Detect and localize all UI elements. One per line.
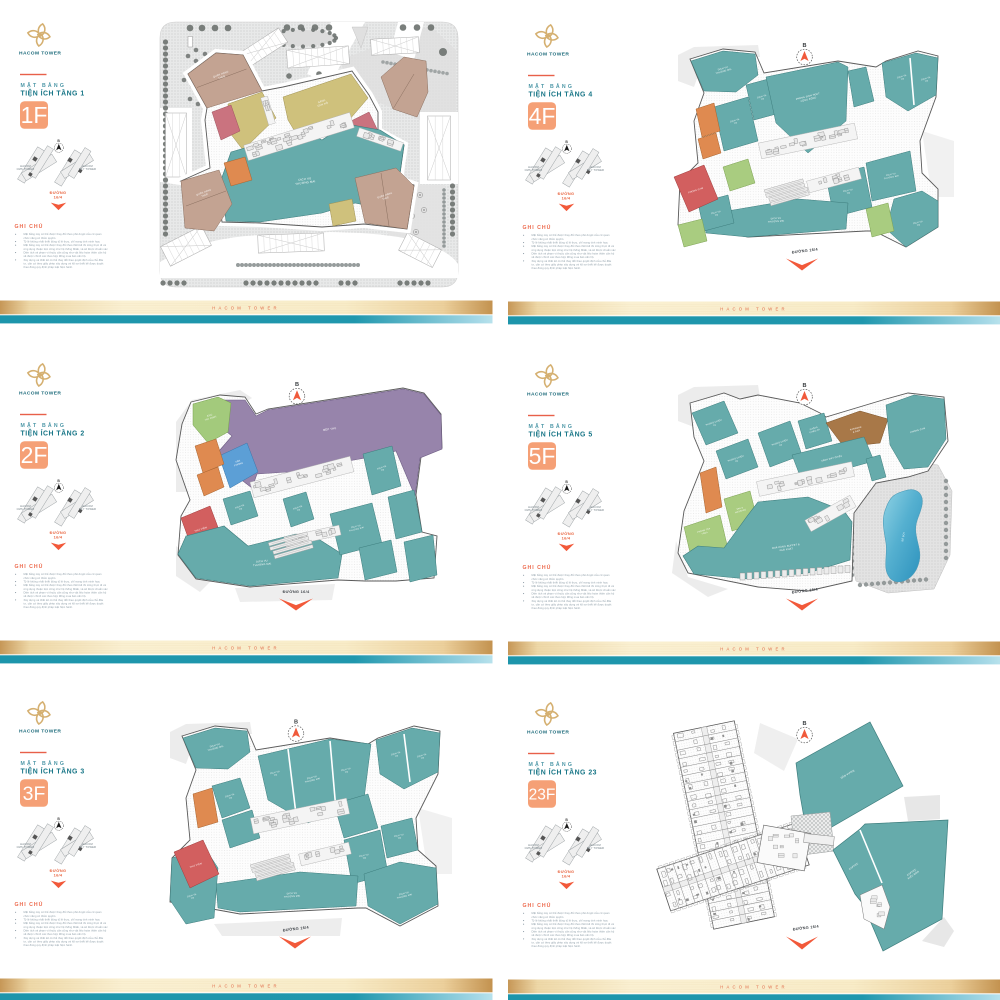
svg-text:MẶT BẰNG: MẶT BẰNG: [529, 82, 575, 90]
svg-text:B: B: [57, 479, 60, 483]
svg-text:HACOM: HACOM: [528, 165, 539, 169]
svg-text:theo đúng quy định pháp luật h: theo đúng quy định pháp luật hiện hành.: [532, 266, 582, 270]
svg-text:sẽ được chính xác theo hợp đồn: sẽ được chính xác theo hợp đồng mua bán …: [24, 254, 87, 258]
svg-text:16/4: 16/4: [562, 196, 571, 201]
svg-text:23F: 23F: [529, 786, 556, 803]
svg-text:tư, căn cứ theo giấy phép xây: tư, căn cứ theo giấy phép xây dựng và hồ…: [24, 601, 104, 605]
svg-text:TIỆN ÍCH TẦNG 1: TIỆN ÍCH TẦNG 1: [21, 87, 85, 97]
svg-text:B: B: [295, 382, 299, 388]
svg-text:HACOM TOWER: HACOM TOWER: [720, 984, 787, 989]
svg-text:GHI CHÚ: GHI CHÚ: [523, 224, 552, 231]
svg-text:B: B: [57, 816, 60, 820]
svg-text:HACOM: HACOM: [528, 505, 539, 509]
svg-text:B: B: [565, 817, 568, 821]
svg-text:CMS TOWER: CMS TOWER: [17, 167, 35, 171]
svg-text:5F: 5F: [529, 443, 556, 469]
svg-text:sẽ được chính xác theo hợp đồn: sẽ được chính xác theo hợp đồng mua bán …: [532, 933, 595, 937]
svg-text:HACOM TOWER: HACOM TOWER: [19, 728, 61, 734]
svg-text:SKY TOWER: SKY TOWER: [587, 846, 604, 850]
svg-text:MẶT BẰNG: MẶT BẰNG: [21, 421, 67, 429]
svg-text:chức năng có thẩm quyền.: chức năng có thẩm quyền.: [532, 577, 565, 581]
svg-text:HACOM: HACOM: [590, 505, 601, 509]
svg-text:MẶT BẰNG: MẶT BẰNG: [21, 81, 67, 89]
svg-text:HACOM TOWER: HACOM TOWER: [527, 391, 569, 397]
svg-text:Diện tích và phạm vi thuộc căn: Diện tích và phạm vi thuộc căn cũng như …: [532, 252, 615, 256]
svg-text:HACOM TOWER: HACOM TOWER: [19, 50, 61, 56]
svg-text:Mặt bằng này có thể được thay: Mặt bằng này có thể được thay đổi theo p…: [24, 909, 102, 914]
svg-text:HACOM: HACOM: [590, 165, 601, 169]
svg-text:theo đúng quy định pháp luật h: theo đúng quy định pháp luật hiện hành.: [24, 943, 74, 947]
svg-text:HACOM TOWER: HACOM TOWER: [212, 305, 279, 310]
svg-text:tư, căn cứ theo giấy phép xây: tư, căn cứ theo giấy phép xây dựng và hồ…: [532, 262, 612, 266]
svg-text:TIỆN ÍCH TẦNG 2: TIỆN ÍCH TẦNG 2: [21, 427, 85, 437]
svg-text:ứng dụng thuận tiện cũng như h: ứng dụng thuận tiện cũng như hệ thống M&…: [532, 925, 617, 929]
svg-text:B: B: [565, 480, 568, 484]
svg-text:HACOM: HACOM: [20, 841, 31, 845]
svg-text:Tỷ lệ không nhất thiết đúng tỷ: Tỷ lệ không nhất thiết đúng tỷ lệ thực, …: [24, 579, 101, 583]
svg-text:ĐƯỜNG 16/4: ĐƯỜNG 16/4: [283, 589, 310, 594]
svg-text:theo đúng quy định pháp luật h: theo đúng quy định pháp luật hiện hành.: [24, 265, 74, 269]
svg-text:chức năng có thẩm quyền.: chức năng có thẩm quyền.: [24, 236, 57, 240]
svg-text:HACOM TOWER: HACOM TOWER: [212, 983, 279, 988]
svg-text:HACOM: HACOM: [82, 504, 93, 508]
svg-text:Tỷ lệ không nhất thiết đúng tỷ: Tỷ lệ không nhất thiết đúng tỷ lệ thực, …: [24, 917, 101, 921]
svg-text:Mặt bằng này có thể được thay: Mặt bằng này có thể được thay đổi theo p…: [532, 572, 610, 577]
svg-text:CMS TOWER: CMS TOWER: [525, 168, 543, 172]
svg-text:HACOM: HACOM: [528, 842, 539, 846]
svg-text:Mặt bằng này có thể được thay: Mặt bằng này có thể được thay đổi theo p…: [532, 232, 610, 237]
svg-text:ĐƯỜNG 16/4: ĐƯỜNG 16/4: [792, 923, 819, 931]
svg-text:GHI CHÚ: GHI CHÚ: [15, 563, 44, 570]
svg-text:ứng dụng thuận tiện cũng như h: ứng dụng thuận tiện cũng như hệ thống M&…: [24, 247, 109, 251]
svg-text:CMS TOWER: CMS TOWER: [525, 508, 543, 512]
svg-text:16/4: 16/4: [562, 873, 571, 878]
svg-text:TIỆN ÍCH TẦNG 23: TIỆN ÍCH TẦNG 23: [529, 766, 598, 776]
svg-text:Tỷ lệ không nhất thiết đúng tỷ: Tỷ lệ không nhất thiết đúng tỷ lệ thực, …: [532, 241, 609, 245]
svg-text:Xây dựng và thiết kế có thể th: Xây dựng và thiết kế có thể thay đổi the…: [532, 936, 612, 940]
svg-text:tư, căn cứ theo giấy phép xây: tư, căn cứ theo giấy phép xây dựng và hồ…: [24, 939, 104, 943]
svg-text:HACOM TOWER: HACOM TOWER: [527, 729, 569, 735]
svg-text:TIỆN ÍCH TẦNG 3: TIỆN ÍCH TẦNG 3: [21, 765, 85, 775]
svg-text:B: B: [294, 719, 298, 725]
svg-text:B: B: [57, 139, 60, 143]
svg-text:Tỷ lệ không nhất thiết đúng tỷ: Tỷ lệ không nhất thiết đúng tỷ lệ thực, …: [24, 240, 101, 244]
svg-text:HACOM TOWER: HACOM TOWER: [720, 646, 787, 651]
svg-text:1F: 1F: [21, 102, 48, 128]
svg-text:Mặt bằng này có thể được thay: Mặt bằng này có thể được thay đổi theo p…: [24, 571, 102, 576]
svg-text:B: B: [802, 43, 806, 49]
svg-text:3F: 3F: [23, 782, 46, 804]
svg-text:GHI CHÚ: GHI CHÚ: [15, 223, 44, 230]
svg-text:MẶT BẰNG: MẶT BẰNG: [529, 759, 575, 767]
svg-text:chức năng có thẩm quyền.: chức năng có thẩm quyền.: [24, 576, 57, 580]
svg-text:tư, căn cứ theo giấy phép xây: tư, căn cứ theo giấy phép xây dựng và hồ…: [24, 261, 104, 265]
svg-text:ứng dụng thuận tiện cũng như h: ứng dụng thuận tiện cũng như hệ thống M&…: [24, 924, 109, 928]
svg-text:HACOM TOWER: HACOM TOWER: [19, 390, 61, 396]
svg-text:TIỆN ÍCH TẦNG 4: TIỆN ÍCH TẦNG 4: [529, 88, 593, 98]
svg-text:ứng dụng thuận tiện cũng như h: ứng dụng thuận tiện cũng như hệ thống M&…: [532, 248, 617, 252]
svg-text:HACOM: HACOM: [82, 164, 93, 168]
svg-text:HACOM: HACOM: [590, 842, 601, 846]
svg-text:sẽ được chính xác theo hợp đồn: sẽ được chính xác theo hợp đồng mua bán …: [532, 595, 595, 599]
svg-text:16/4: 16/4: [54, 872, 63, 877]
svg-text:ĐƯỜNG 16/4: ĐƯỜNG 16/4: [791, 246, 818, 254]
svg-text:theo đúng quy định pháp luật h: theo đúng quy định pháp luật hiện hành.: [532, 944, 582, 948]
svg-text:Xây dựng và thiết kế có thể th: Xây dựng và thiết kế có thể thay đổi the…: [24, 598, 104, 602]
svg-text:HACOM TOWER: HACOM TOWER: [527, 51, 569, 57]
svg-text:Diện tích và phạm vi thuộc căn: Diện tích và phạm vi thuộc căn cũng như …: [24, 251, 107, 255]
svg-text:HACOM TOWER: HACOM TOWER: [212, 645, 279, 650]
svg-text:GHI CHÚ: GHI CHÚ: [523, 902, 552, 909]
svg-text:B: B: [565, 140, 568, 144]
svg-text:Xây dựng và thiết kế có thể th: Xây dựng và thiết kế có thể thay đổi the…: [24, 935, 104, 939]
svg-text:B: B: [802, 721, 806, 727]
svg-text:GHI CHÚ: GHI CHÚ: [523, 564, 552, 571]
svg-text:Mặt bằng này có thể được thay: Mặt bằng này có thể được thay đổi theo p…: [532, 910, 610, 915]
svg-text:tư, căn cứ theo giấy phép xây: tư, căn cứ theo giấy phép xây dựng và hồ…: [532, 602, 612, 606]
svg-text:16/4: 16/4: [54, 195, 63, 200]
svg-text:SKY TOWER: SKY TOWER: [587, 168, 604, 172]
svg-text:Diện tích và phạm vi thuộc căn: Diện tích và phạm vi thuộc căn cũng như …: [24, 928, 107, 932]
svg-text:HACOM: HACOM: [20, 504, 31, 508]
svg-text:chức năng có thẩm quyền.: chức năng có thẩm quyền.: [532, 914, 565, 918]
svg-text:MẶT BẰNG: MẶT BẰNG: [529, 422, 575, 430]
svg-text:Xây dựng và thiết kế có thể th: Xây dựng và thiết kế có thể thay đổi the…: [532, 259, 612, 263]
svg-text:Xây dựng và thiết kế có thể th: Xây dựng và thiết kế có thể thay đổi the…: [24, 258, 104, 262]
svg-text:CMS TOWER: CMS TOWER: [17, 507, 35, 511]
svg-text:SKY TOWER: SKY TOWER: [587, 508, 604, 512]
svg-text:2F: 2F: [21, 442, 48, 468]
svg-text:CMS TOWER: CMS TOWER: [17, 845, 35, 849]
svg-text:Diện tích và phạm vi thuộc căn: Diện tích và phạm vi thuộc căn cũng như …: [24, 590, 107, 594]
svg-text:HACOM: HACOM: [20, 164, 31, 168]
svg-text:SKY TOWER: SKY TOWER: [79, 167, 96, 171]
svg-text:Diện tích và phạm vi thuộc căn: Diện tích và phạm vi thuộc căn cũng như …: [532, 591, 615, 595]
svg-text:4F: 4F: [529, 103, 556, 129]
svg-text:ứng dụng thuận tiện cũng như h: ứng dụng thuận tiện cũng như hệ thống M&…: [532, 588, 617, 592]
svg-text:Mặt bằng này có thể được thay: Mặt bằng này có thể được thay đổi theo p…: [24, 231, 102, 236]
svg-text:sẽ được chính xác theo hợp đồn: sẽ được chính xác theo hợp đồng mua bán …: [532, 255, 595, 259]
svg-text:MẶT BẰNG: MẶT BẰNG: [21, 758, 67, 766]
svg-text:ứng dụng thuận tiện cũng như h: ứng dụng thuận tiện cũng như hệ thống M&…: [24, 587, 109, 591]
svg-text:GHI CHÚ: GHI CHÚ: [15, 901, 44, 908]
svg-text:B: B: [802, 383, 806, 389]
svg-text:chức năng có thẩm quyền.: chức năng có thẩm quyền.: [532, 237, 565, 241]
svg-text:CMS TOWER: CMS TOWER: [525, 846, 543, 850]
svg-text:Diện tích và phạm vi thuộc căn: Diện tích và phạm vi thuộc căn cũng như …: [532, 929, 615, 933]
svg-text:Tỷ lệ không nhất thiết đúng tỷ: Tỷ lệ không nhất thiết đúng tỷ lệ thực, …: [532, 918, 609, 922]
svg-text:SKY TOWER: SKY TOWER: [79, 507, 96, 511]
svg-text:sẽ được chính xác theo hợp đồn: sẽ được chính xác theo hợp đồng mua bán …: [24, 932, 87, 936]
svg-text:theo đúng quy định pháp luật h: theo đúng quy định pháp luật hiện hành.: [24, 605, 74, 609]
svg-text:chức năng có thẩm quyền.: chức năng có thẩm quyền.: [24, 913, 57, 917]
svg-text:16/4: 16/4: [54, 534, 63, 539]
svg-text:Tỷ lệ không nhất thiết đúng tỷ: Tỷ lệ không nhất thiết đúng tỷ lệ thực, …: [532, 580, 609, 584]
svg-text:SKY TOWER: SKY TOWER: [79, 845, 96, 849]
svg-text:HACOM: HACOM: [82, 841, 93, 845]
svg-text:tư, căn cứ theo giấy phép xây: tư, căn cứ theo giấy phép xây dựng và hồ…: [532, 940, 612, 944]
svg-text:HACOM TOWER: HACOM TOWER: [720, 306, 787, 311]
svg-text:TIỆN ÍCH TẦNG 5: TIỆN ÍCH TẦNG 5: [529, 428, 593, 438]
svg-text:theo đúng quy định pháp luật h: theo đúng quy định pháp luật hiện hành.: [532, 606, 582, 610]
svg-text:Xây dựng và thiết kế có thể th: Xây dựng và thiết kế có thể thay đổi the…: [532, 599, 612, 603]
svg-text:16/4: 16/4: [562, 535, 571, 540]
svg-text:sẽ được chính xác theo hợp đồn: sẽ được chính xác theo hợp đồng mua bán …: [24, 594, 87, 598]
